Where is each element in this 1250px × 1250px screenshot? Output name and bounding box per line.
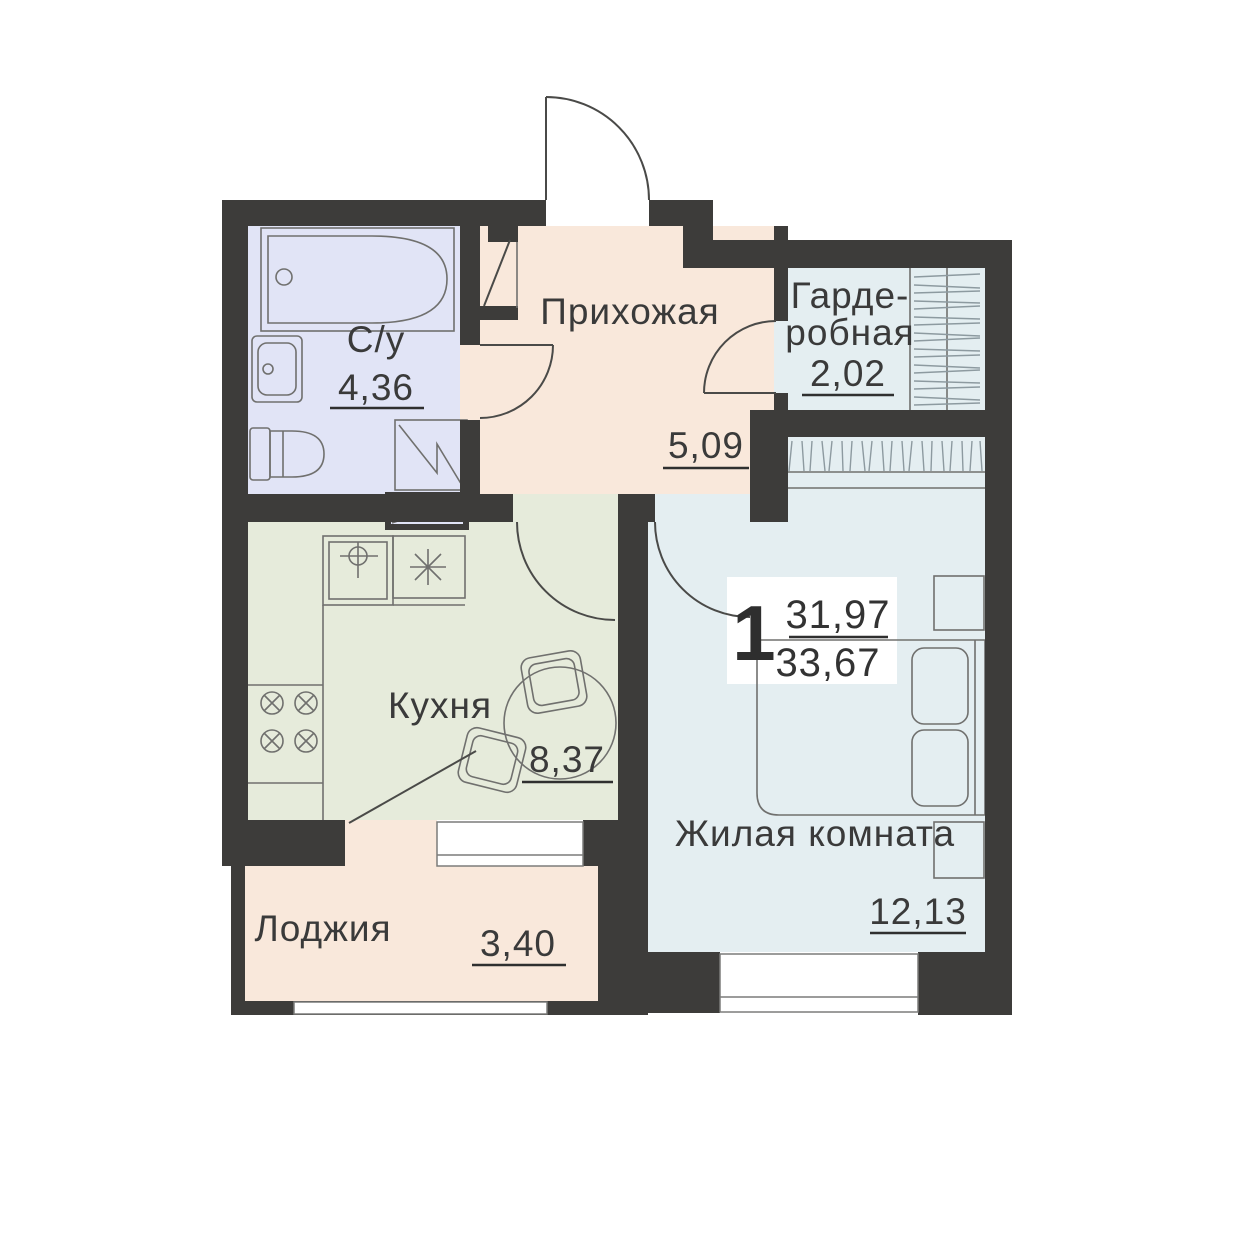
area-bathroom: 4,36 <box>338 367 414 408</box>
area-living-room: 12,13 <box>869 891 967 932</box>
badge-total-area: 33,67 <box>775 641 880 685</box>
floor-plan: С/у 4,36 Прихожая 5,09 Гарде- робная 2,0… <box>0 0 1250 1250</box>
label-loggia: Лоджия <box>254 908 391 949</box>
area-hallway: 5,09 <box>668 425 744 466</box>
label-wardrobe-line2: робная <box>785 312 914 353</box>
floor-plan-canvas: С/у 4,36 Прихожая 5,09 Гарде- робная 2,0… <box>0 0 1250 1250</box>
label-living-room: Жилая комната <box>675 813 955 854</box>
area-loggia: 3,40 <box>480 923 556 964</box>
loggia-glazing <box>294 1002 547 1014</box>
label-bathroom: С/у <box>347 319 406 360</box>
kitchen-loggia-window <box>437 822 583 866</box>
living-room-window <box>720 954 918 1012</box>
label-kitchen: Кухня <box>388 685 492 726</box>
entrance-door <box>546 97 649 200</box>
room-fill-bathroom <box>248 226 460 494</box>
area-kitchen: 8,37 <box>529 739 605 780</box>
label-hallway: Прихожая <box>540 291 719 332</box>
area-wardrobe: 2,02 <box>810 353 886 394</box>
label-wardrobe-line1: Гарде- <box>791 275 910 316</box>
badge-living-area: 31,97 <box>785 593 890 637</box>
badge-rooms-count: 1 <box>732 589 775 677</box>
